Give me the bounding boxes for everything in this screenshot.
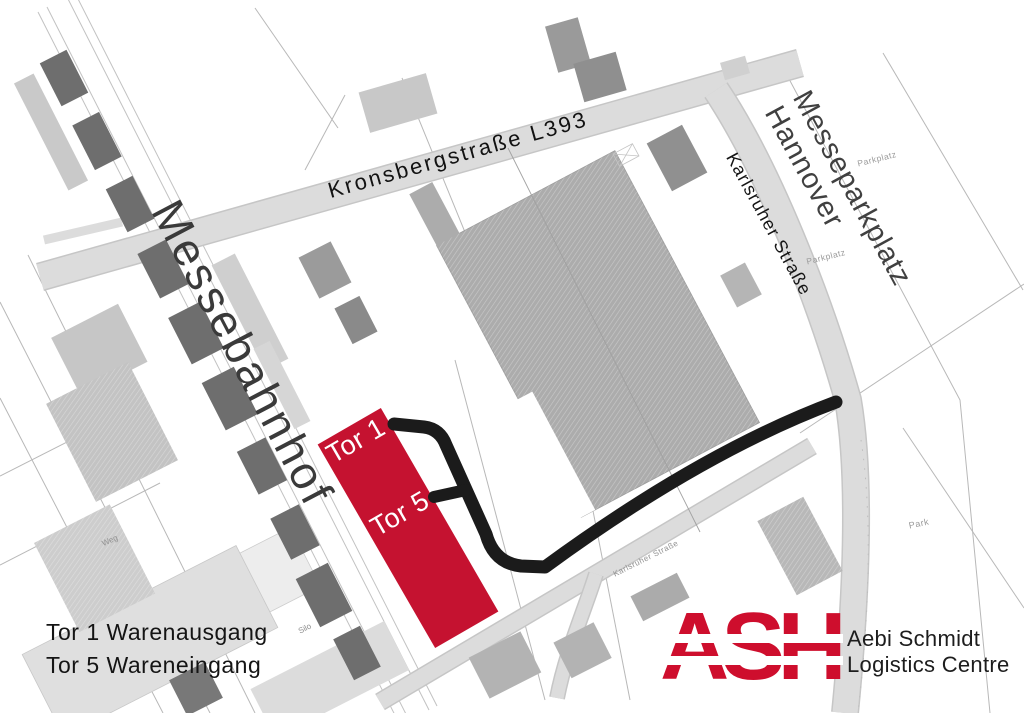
- legend: Tor 1 Warenausgang Tor 5 Wareneingang: [46, 616, 268, 682]
- company-name-line2: Logistics Centre: [847, 652, 1010, 678]
- company-name-line1: Aebi Schmidt: [847, 626, 1010, 652]
- site-map: Kronsbergstraße L393 Karlsruher Straße M…: [0, 0, 1024, 713]
- buildings-west: [34, 304, 178, 632]
- legend-line-2: Tor 5 Wareneingang: [46, 649, 268, 682]
- logo-letters: ASH: [660, 612, 845, 682]
- map-canvas: [0, 0, 1024, 713]
- road-fork-west: [44, 222, 122, 240]
- legend-line-1: Tor 1 Warenausgang: [46, 616, 268, 649]
- company-name: Aebi Schmidt Logistics Centre: [847, 626, 1010, 677]
- route-branch-tor5: [434, 490, 466, 497]
- company-logo: ASH Aebi Schmidt Logistics Centre: [660, 612, 1024, 696]
- logo-stripe-2: [657, 656, 843, 665]
- logo-stripe-1: [657, 634, 843, 643]
